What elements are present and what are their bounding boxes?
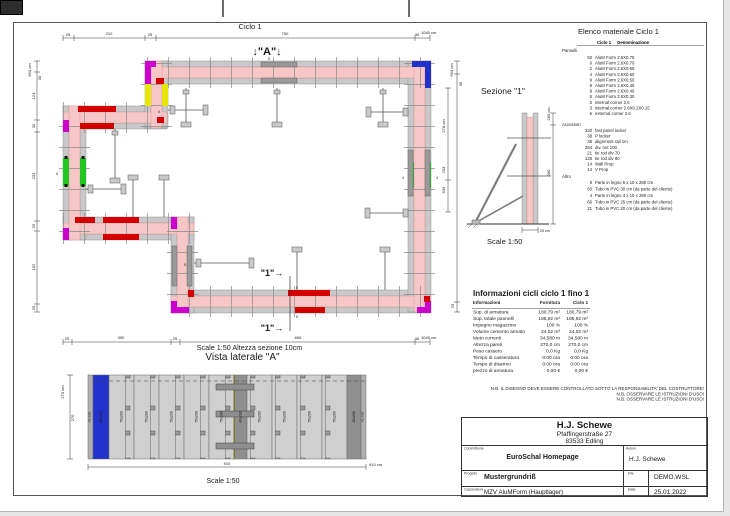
svg-text:75x260: 75x260 bbox=[145, 411, 149, 423]
title-block-divider bbox=[462, 445, 707, 446]
svg-text:910 cm: 910 cm bbox=[369, 462, 383, 467]
lateral-dim-left: 270 cm 270 bbox=[60, 375, 75, 459]
altro-rows: 8Parte in legno 5 x 10 x 280 cm50Tubo in… bbox=[562, 180, 712, 213]
svg-text:75x260: 75x260 bbox=[170, 411, 174, 423]
svg-text:75x260: 75x260 bbox=[308, 411, 312, 423]
svg-text:45x260: 45x260 bbox=[352, 411, 356, 423]
fold-mark bbox=[408, 0, 410, 17]
file-value: DEMO.WSL bbox=[654, 474, 689, 481]
svg-text:750: 750 bbox=[282, 31, 289, 36]
plan-dim-top: 25 210 25 750 30 1045 cm bbox=[63, 30, 437, 41]
plan-scale-note: Scale 1:50 Altezza sezione 10cm bbox=[162, 343, 337, 352]
svg-text:280 cm: 280 cm bbox=[546, 107, 551, 121]
svg-text:AE 2/60: AE 2/60 bbox=[361, 411, 365, 422]
svg-text:910: 910 bbox=[224, 461, 231, 466]
committente-label: Committente bbox=[464, 447, 484, 451]
pannelli-rows: 50AluM Form 2.6X0.756AluM Form 2.6X0.702… bbox=[562, 55, 712, 117]
plan-title: Ciclo 1 bbox=[215, 22, 285, 31]
joint-label: 5 bbox=[296, 315, 298, 319]
wall-prop bbox=[86, 184, 126, 194]
svg-text:25: 25 bbox=[450, 303, 455, 308]
casseratura-value: MZV AluMForm (Hauptlager) bbox=[484, 489, 563, 496]
plan-drawing: 4 5 5 4 4 5 5 5 ↓"A"↓ "1"→ "1"→ bbox=[27, 30, 463, 345]
svg-text:124: 124 bbox=[31, 92, 36, 99]
drawing-sheet: 4 5 5 4 4 5 5 5 ↓"A"↓ "1"→ "1"→ bbox=[0, 0, 724, 512]
progetto-label: Progetto bbox=[464, 472, 477, 476]
disclaimer-notes: N.B. IL DISEGNO DEVE ESSERE CONTROLLATO … bbox=[354, 386, 704, 402]
svg-text:25 cm: 25 cm bbox=[540, 229, 550, 233]
svg-text:"1"→: "1"→ bbox=[261, 268, 284, 278]
green-panel-label: 4 bbox=[402, 176, 404, 180]
company-address-1: Pfaffingerstraße 27 bbox=[462, 431, 707, 438]
svg-text:25: 25 bbox=[31, 305, 36, 310]
info-table-header: Informazioni Fornitura Ciclo 1 bbox=[472, 300, 592, 307]
section-marker-a: ↓"A"↓ bbox=[252, 46, 281, 58]
info-row: prezzo di armatura 0,00 € 0,00 € bbox=[472, 368, 592, 375]
wall-prop bbox=[110, 129, 120, 183]
tie-points bbox=[65, 156, 430, 189]
prop-count-label: 4 bbox=[158, 110, 160, 114]
svg-text:270: 270 bbox=[70, 414, 75, 421]
file-label: File bbox=[628, 472, 634, 476]
info-table-title: Informazioni cicli ciclo 1 fino 1 bbox=[473, 289, 589, 298]
section-dim-height: 280 cm 280 bbox=[546, 107, 556, 224]
prop-count-label: 5 bbox=[184, 263, 186, 267]
wall-prop bbox=[194, 258, 254, 268]
plan-dim-right: 694 cm 30 278 cm 203 639 25 bbox=[441, 61, 463, 312]
push-pull-prop bbox=[472, 144, 523, 224]
lateral-scale: Scale 1:50 bbox=[187, 478, 259, 485]
wall-prop bbox=[292, 247, 302, 290]
svg-text:233: 233 bbox=[31, 172, 36, 179]
svg-text:30: 30 bbox=[415, 32, 420, 37]
lateral-dim-bottom: 910 910 cm bbox=[88, 461, 383, 470]
plan-wall-core bbox=[63, 61, 430, 313]
svg-text:192: 192 bbox=[31, 263, 36, 270]
lateral-title: Vista laterale "A" bbox=[170, 352, 315, 363]
accessori-rows: 320fast panel locker38P locker38alignmen… bbox=[562, 128, 712, 173]
svg-text:75x260: 75x260 bbox=[220, 411, 224, 423]
svg-text:75x260: 75x260 bbox=[333, 411, 337, 423]
alignment-rails bbox=[172, 62, 430, 286]
material-row: 21Tubo in PVC 20 cm (da parte del client… bbox=[562, 206, 712, 213]
svg-text:50x260: 50x260 bbox=[99, 411, 103, 423]
title-block-divider bbox=[623, 445, 624, 496]
plan-wall-panels bbox=[63, 61, 431, 313]
casseratura-label: Casseratura bbox=[464, 488, 483, 492]
svg-text:75x260: 75x260 bbox=[195, 411, 199, 423]
title-block-divider bbox=[648, 470, 649, 496]
sheet-corner-mark bbox=[0, 0, 23, 15]
info-table: Informazioni Fornitura Ciclo 1 Sup. di a… bbox=[472, 300, 592, 375]
title-block-divider bbox=[462, 470, 707, 471]
note-line: N.B. OSSERVARE LE ISTRUZIONI D'USO! bbox=[354, 397, 704, 402]
green-panel-label: 4 bbox=[436, 176, 438, 180]
svg-text:25: 25 bbox=[66, 32, 71, 37]
wall-prop bbox=[128, 175, 138, 217]
svg-text:"1"→: "1"→ bbox=[261, 323, 284, 333]
svg-text:280: 280 bbox=[546, 169, 551, 176]
data-label: Data bbox=[628, 488, 635, 492]
green-panel-label: 5 bbox=[56, 172, 58, 176]
material-row: 6external corner 2.6 bbox=[562, 111, 712, 117]
svg-text:40x260: 40x260 bbox=[239, 411, 243, 423]
section-label-altro: Altro bbox=[562, 174, 571, 179]
svg-text:30: 30 bbox=[37, 75, 42, 80]
svg-text:203: 203 bbox=[441, 166, 446, 173]
section-dim-width: 25 cm bbox=[522, 227, 550, 233]
section-scale: Scale 1:50 bbox=[487, 237, 522, 246]
section-label-accessori: Accessori bbox=[562, 122, 581, 127]
progetto-value: Mustergrundriß bbox=[484, 474, 536, 481]
section-label-pannelli: Pannelli bbox=[562, 48, 577, 53]
svg-text:25: 25 bbox=[148, 32, 153, 37]
wall-prop bbox=[159, 175, 169, 217]
svg-text:↓"A"↓: ↓"A"↓ bbox=[252, 46, 281, 58]
wall-prop bbox=[366, 107, 408, 117]
autore-label: Autore bbox=[626, 447, 636, 451]
svg-text:300: 300 bbox=[118, 335, 125, 340]
svg-text:1045 cm: 1045 cm bbox=[421, 30, 437, 35]
committente-value: EuroSchal Homepage bbox=[462, 454, 623, 461]
company-address-2: 83533 Edling bbox=[462, 438, 707, 445]
svg-text:639: 639 bbox=[441, 186, 446, 193]
data-value: 25.01.2022 bbox=[654, 489, 687, 496]
magenta-corner-panels bbox=[63, 61, 431, 313]
svg-text:654 cm: 654 cm bbox=[27, 63, 32, 77]
svg-text:30: 30 bbox=[415, 336, 420, 341]
svg-text:25: 25 bbox=[31, 223, 36, 228]
info-table-rows: Sup. di armatura 180,79 m² 180,79 m² Sup… bbox=[472, 310, 592, 375]
wall-prop bbox=[380, 247, 390, 290]
svg-text:25: 25 bbox=[173, 336, 178, 341]
svg-text:30: 30 bbox=[458, 81, 463, 86]
svg-text:30: 30 bbox=[31, 123, 36, 128]
title-block-divider bbox=[462, 486, 707, 487]
svg-text:1045 cm: 1045 cm bbox=[421, 335, 437, 340]
wall-prop bbox=[181, 88, 191, 127]
svg-text:AE 2/60: AE 2/60 bbox=[88, 411, 92, 422]
lateral-drawing: AE 2/60 50x260 75x260 75x260 75x260 75x2… bbox=[60, 375, 383, 470]
svg-text:665: 665 bbox=[295, 335, 302, 340]
title-block: H.J. Schewe Pfaffingerstraße 27 83533 Ed… bbox=[461, 417, 708, 497]
joint-label: 5 bbox=[296, 286, 298, 290]
material-row: 14V Prop bbox=[562, 167, 712, 173]
svg-text:278 cm: 278 cm bbox=[441, 119, 446, 133]
plan-tiny-labels: 4 5 5 4 4 5 5 5 bbox=[56, 57, 438, 319]
svg-text:25: 25 bbox=[65, 336, 70, 341]
plan-panel-joints bbox=[59, 57, 435, 317]
fold-mark bbox=[222, 0, 224, 17]
svg-text:694 cm: 694 cm bbox=[449, 63, 454, 77]
material-list-title: Elenco materiale Ciclo 1 bbox=[578, 27, 659, 36]
wall-prop bbox=[168, 105, 208, 115]
col-denominazione: Denominazione bbox=[617, 40, 649, 45]
svg-text:270 cm: 270 cm bbox=[60, 385, 65, 399]
svg-text:75x260: 75x260 bbox=[258, 411, 262, 423]
wall-prop bbox=[365, 208, 408, 218]
svg-text:75x260: 75x260 bbox=[283, 411, 287, 423]
section-drawing: 280 cm 280 25 cm bbox=[467, 107, 556, 233]
wall-prop bbox=[378, 88, 388, 127]
svg-text:75x260: 75x260 bbox=[120, 411, 124, 423]
plan-dim-left: 654 cm 30 124 30 233 25 192 25 bbox=[27, 61, 42, 312]
company-name: H.J. Schewe bbox=[462, 420, 707, 431]
svg-text:210: 210 bbox=[106, 31, 113, 36]
wall-prop bbox=[272, 88, 282, 127]
autore-value: H.J. Schewe bbox=[629, 456, 666, 463]
material-list-header: Ciclo 1 Denominazione bbox=[577, 40, 704, 46]
section-title: Sezione "1" bbox=[481, 86, 525, 96]
col-ciclo: Ciclo 1 bbox=[597, 40, 611, 45]
green-panels bbox=[63, 158, 431, 188]
